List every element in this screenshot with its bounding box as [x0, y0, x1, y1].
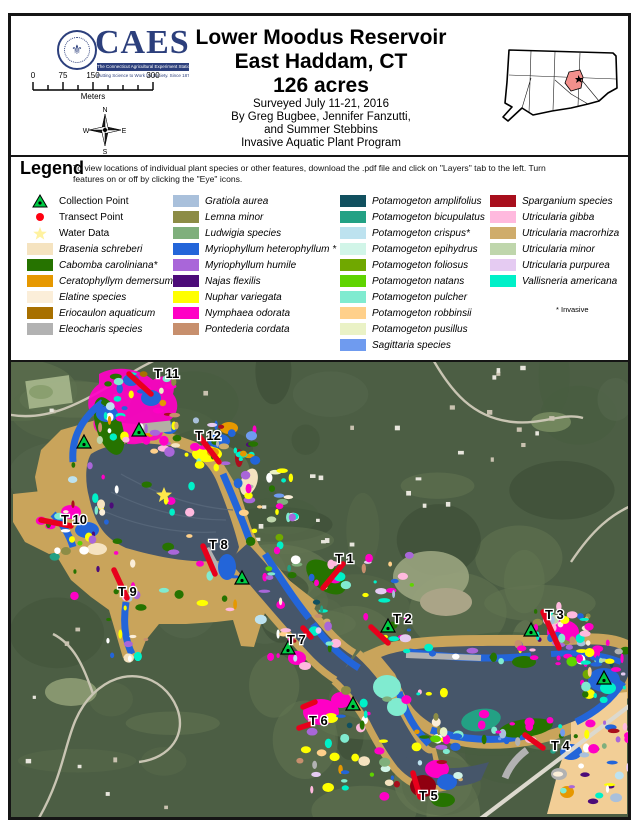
- species-label: Pontederia cordata: [205, 324, 290, 335]
- species-label: Eriocaulon aquaticum: [59, 308, 155, 319]
- species-label: Potamogeton pusillus: [372, 324, 468, 335]
- compass-rose-icon: N S E W: [83, 107, 127, 154]
- species-color-swatch: [490, 275, 516, 287]
- species-color-swatch: [490, 227, 516, 239]
- page-title-line1: Lower Moodus Reservoir: [166, 26, 476, 50]
- species-label: Vallisneria americana: [522, 276, 617, 287]
- species-label: Potamogeton pulcher: [372, 292, 467, 303]
- species-color-swatch: [340, 307, 366, 319]
- scale-tick-0: 0: [31, 71, 36, 80]
- transect-label-t9: T 9: [118, 584, 137, 599]
- transect-label-t8: T 8: [209, 537, 228, 552]
- species-color-swatch: [27, 243, 53, 255]
- legend-row: Utricularia minor: [490, 241, 595, 257]
- compass-e: E: [122, 128, 127, 135]
- legend-row: Najas flexilis: [173, 273, 261, 289]
- legend-row: Water Data: [27, 225, 109, 241]
- species-color-swatch: [173, 307, 199, 319]
- legend-panel: Legend To view locations of individual p…: [11, 157, 628, 362]
- species-color-swatch: [340, 291, 366, 303]
- legend-point-label: Transect Point: [59, 212, 123, 223]
- report-sheet: ⚜ CAES The Connecticut Agricultural Expe…: [8, 13, 631, 820]
- legend-row: Potamogeton crispus*: [340, 225, 470, 241]
- legend-row: Myriophyllum heterophyllum *: [173, 241, 336, 257]
- legend-row: Eleocharis species: [27, 321, 142, 337]
- scale-bar-and-compass: 0 75 150 300 Meters N S E W: [13, 68, 178, 154]
- species-label: Utricularia gibba: [522, 212, 594, 223]
- header-block: ⚜ CAES The Connecticut Agricultural Expe…: [11, 16, 628, 157]
- transect-label-t7: T 7: [287, 632, 306, 647]
- species-label: Potamogeton robbinsii: [372, 308, 472, 319]
- species-label: Ceratophyllym demersum: [59, 276, 173, 287]
- species-color-swatch: [490, 211, 516, 223]
- legend-row: Myriophyllum humile: [173, 257, 296, 273]
- legend-row: Utricularia macrorhiza: [490, 225, 619, 241]
- legend-row: Transect Point: [27, 209, 123, 225]
- species-color-swatch: [173, 291, 199, 303]
- species-color-swatch: [340, 275, 366, 287]
- species-label: Potamogeton crispus*: [372, 228, 470, 239]
- species-color-swatch: [173, 323, 199, 335]
- survey-map[interactable]: T 1T 2T 3T 4T 5T 6T 7T 8T 9T 10T 11T 12: [11, 362, 628, 817]
- transect-label-t5: T 5: [419, 788, 438, 803]
- species-color-swatch: [340, 259, 366, 271]
- transect-label-t2: T 2: [393, 611, 412, 626]
- species-label: Potamogeton amplifolius: [372, 196, 482, 207]
- legend-point-label: Collection Point: [59, 196, 128, 207]
- legend-row: Brasenia schreberi: [27, 241, 142, 257]
- species-label: Lemna minor: [205, 212, 263, 223]
- species-label: Sparganium species: [522, 196, 613, 207]
- species-color-swatch: [340, 227, 366, 239]
- species-label: Myriophyllum humile: [205, 260, 296, 271]
- invasive-note: * Invasive: [556, 305, 589, 314]
- transect-label-t1: T 1: [335, 551, 354, 566]
- legend-row: Lemna minor: [173, 209, 263, 225]
- species-color-swatch: [173, 243, 199, 255]
- legend-row: Eriocaulon aquaticum: [27, 305, 155, 321]
- species-color-swatch: [340, 323, 366, 335]
- species-color-swatch: [173, 275, 199, 287]
- legend-row: Collection Point: [27, 193, 128, 209]
- legend-row: Ceratophyllym demersum: [27, 273, 173, 289]
- scale-tick-75: 75: [59, 71, 68, 80]
- scale-unit: Meters: [81, 92, 105, 101]
- species-label: Nymphaea odorata: [205, 308, 290, 319]
- transect-label-t10: T 10: [61, 512, 87, 527]
- species-label: Utricularia purpurea: [522, 260, 610, 271]
- scale-tick-300: 300: [146, 71, 160, 80]
- species-color-swatch: [490, 195, 516, 207]
- legend-row: Sagittaria species: [340, 337, 451, 353]
- legend-description: To view locations of individual plant sp…: [73, 163, 578, 184]
- species-label: Cabomba caroliniana*: [59, 260, 157, 271]
- species-label: Potamogeton epihydrus: [372, 244, 478, 255]
- legend-row: Potamogeton bicupulatus: [340, 209, 485, 225]
- compass-n: N: [102, 107, 107, 114]
- legend-row: Vallisneria americana: [490, 273, 617, 289]
- legend-row: Potamogeton pulcher: [340, 289, 467, 305]
- transect-label-t12: T 12: [195, 428, 221, 443]
- connecticut-inset-map: [495, 42, 627, 130]
- species-label: Ludwigia species: [205, 228, 281, 239]
- aerial-map-canvas: T 1T 2T 3T 4T 5T 6T 7T 8T 9T 10T 11T 12: [11, 362, 628, 817]
- species-label: Elatine species: [59, 292, 126, 303]
- species-label: Sagittaria species: [372, 340, 451, 351]
- species-color-swatch: [27, 323, 53, 335]
- legend-row: Pontederia cordata: [173, 321, 290, 337]
- legend-row: Potamogeton robbinsii: [340, 305, 472, 321]
- legend-row: Potamogeton foliosus: [340, 257, 468, 273]
- species-color-swatch: [173, 227, 199, 239]
- species-color-swatch: [490, 243, 516, 255]
- legend-row: Utricularia purpurea: [490, 257, 610, 273]
- species-color-swatch: [490, 259, 516, 271]
- collection-triangle-icon: [27, 194, 53, 208]
- species-label: Potamogeton foliosus: [372, 260, 468, 271]
- transect-dot-icon: [27, 210, 53, 224]
- transect-label-t6: T 6: [309, 713, 328, 728]
- species-label: Potamogeton bicupulatus: [372, 212, 485, 223]
- legend-row: Potamogeton amplifolius: [340, 193, 482, 209]
- byline-2: and Summer Stebbins: [166, 124, 476, 137]
- surveyed-line: Surveyed July 11-21, 2016: [166, 98, 476, 111]
- species-color-swatch: [173, 195, 199, 207]
- water-star-icon: [27, 226, 53, 240]
- species-color-swatch: [173, 211, 199, 223]
- legend-point-label: Water Data: [59, 228, 109, 239]
- legend-row: Potamogeton pusillus: [340, 321, 468, 337]
- legend-row: Sparganium species: [490, 193, 613, 209]
- species-color-swatch: [27, 275, 53, 287]
- species-label: Gratiola aurea: [205, 196, 268, 207]
- species-color-swatch: [340, 195, 366, 207]
- title-block: Lower Moodus Reservoir East Haddam, CT 1…: [166, 26, 476, 150]
- caes-seal-icon: ⚜: [57, 30, 97, 70]
- species-color-swatch: [340, 243, 366, 255]
- legend-row: Nymphaea odorata: [173, 305, 290, 321]
- species-color-swatch: [27, 259, 53, 271]
- species-color-swatch: [27, 307, 53, 319]
- legend-row: Elatine species: [27, 289, 126, 305]
- species-label: Potamogeton natans: [372, 276, 464, 287]
- compass-w: W: [83, 128, 90, 135]
- species-label: Najas flexilis: [205, 276, 261, 287]
- scale-bar: 0 75 150 300 Meters: [31, 71, 160, 101]
- species-label: Eleocharis species: [59, 324, 142, 335]
- species-label: Utricularia minor: [522, 244, 595, 255]
- page-title-line3: 126 acres: [166, 74, 476, 98]
- species-label: Brasenia schreberi: [59, 244, 142, 255]
- species-color-swatch: [27, 291, 53, 303]
- legend-row: Utricularia gibba: [490, 209, 594, 225]
- compass-s: S: [103, 149, 108, 154]
- legend-row: Potamogeton natans: [340, 273, 464, 289]
- species-color-swatch: [340, 211, 366, 223]
- legend-row: Potamogeton epihydrus: [340, 241, 478, 257]
- species-label: Myriophyllum heterophyllum *: [205, 244, 336, 255]
- species-color-swatch: [340, 339, 366, 351]
- page-title-line2: East Haddam, CT: [166, 50, 476, 74]
- species-label: Nuphar variegata: [205, 292, 282, 303]
- legend-row: Ludwigia species: [173, 225, 281, 241]
- legend-row: Nuphar variegata: [173, 289, 282, 305]
- species-label: Utricularia macrorhiza: [522, 228, 619, 239]
- legend-row: Cabomba caroliniana*: [27, 257, 157, 273]
- legend-row: Gratiola aurea: [173, 193, 268, 209]
- transect-label-t4: T 4: [551, 738, 571, 753]
- scale-tick-150: 150: [86, 71, 100, 80]
- byline-1: By Greg Bugbee, Jennifer Fanzutti,: [166, 111, 476, 124]
- transect-label-t3: T 3: [545, 607, 564, 622]
- program-line: Invasive Aquatic Plant Program: [166, 137, 476, 150]
- species-color-swatch: [173, 259, 199, 271]
- transect-label-t11: T 11: [154, 366, 179, 381]
